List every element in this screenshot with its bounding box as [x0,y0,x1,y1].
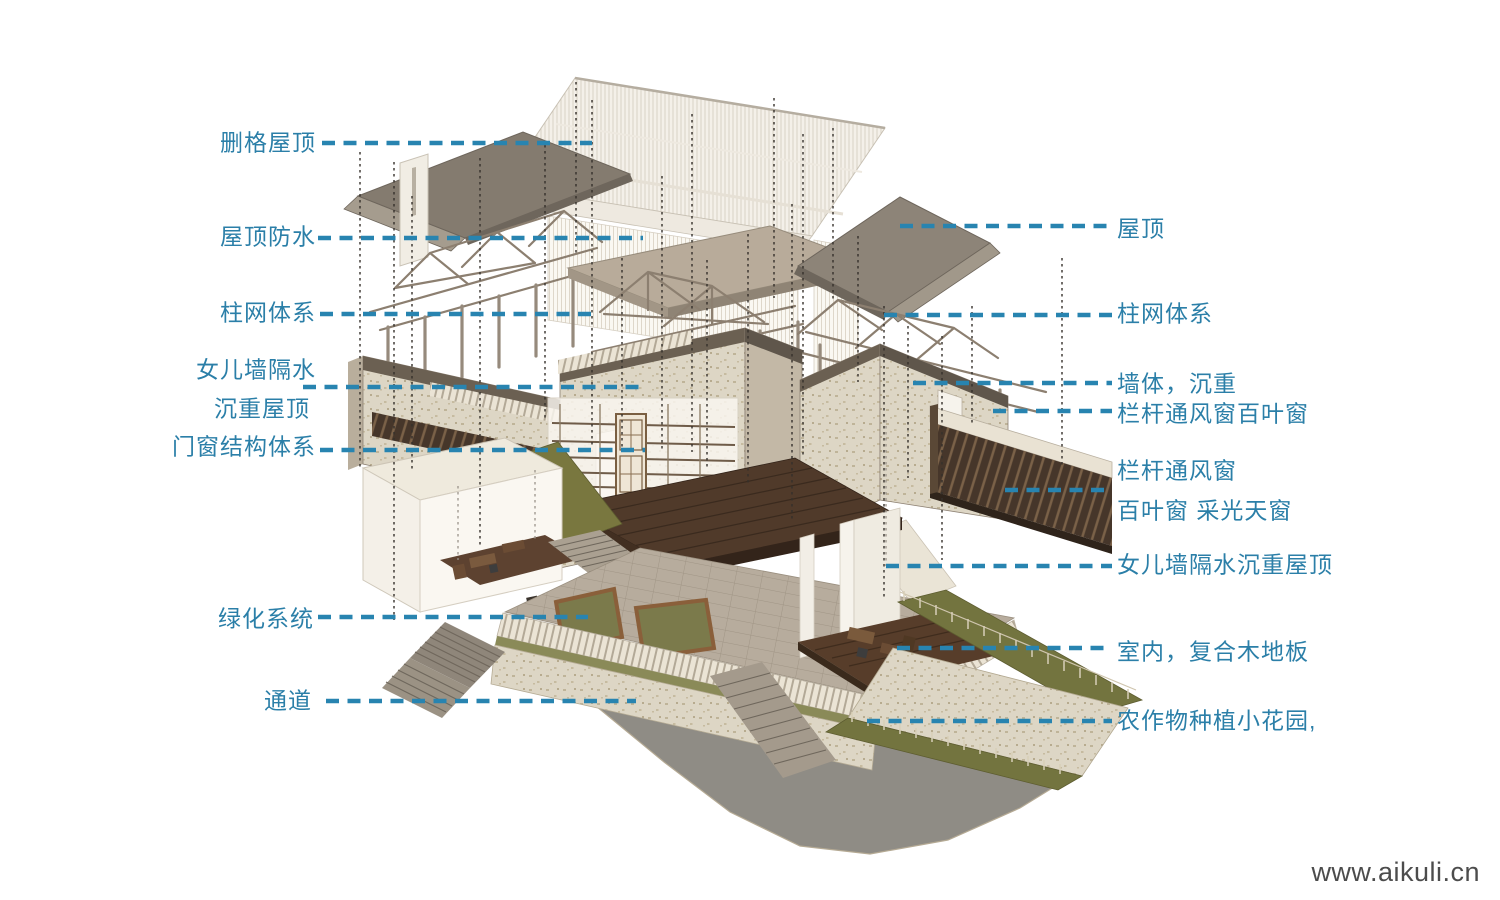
annotation-label-right-6: 女儿墙隔水沉重屋顶 [1117,554,1333,577]
annotation-label-right-4: 栏杆通风窗 [1117,460,1237,483]
annotation-label-right-8: 农作物种植小花园, [1117,710,1316,733]
annotation-label-left-3: 女儿墙隔水 [196,359,316,382]
annotation-label-right-1: 柱网体系 [1117,303,1213,326]
annotation-label-left-7: 通道 [264,690,312,713]
annotation-label-right-2: 墙体，沉重 [1117,373,1237,396]
annotation-label-left-1: 屋顶防水 [220,226,316,249]
annotation-label-right-0: 屋顶 [1117,218,1165,241]
annotation-label-left-5: 门窗结构体系 [172,436,316,459]
annotation-label-right-7: 室内，复合木地板 [1117,641,1309,664]
annotation-label-right-5: 百叶窗 采光天窗 [1117,500,1292,523]
annotation-label-left-2: 柱网体系 [220,302,316,325]
left-outdoor-stairs [382,622,505,718]
annotation-label-left-4: 沉重屋顶 [214,398,310,421]
watermark: www.aikuli.cn [1311,857,1480,888]
annotation-label-left-6: 绿化系统 [218,608,314,631]
annotation-label-right-3: 栏杆通风窗百叶窗 [1117,403,1309,426]
exploded-axonometric-diagram: 删格屋顶屋顶防水柱网体系女儿墙隔水沉重屋顶门窗结构体系绿化系统通道屋顶柱网体系墙… [0,0,1500,900]
annotation-label-left-0: 删格屋顶 [220,132,316,155]
left-interior-volume [363,438,585,612]
